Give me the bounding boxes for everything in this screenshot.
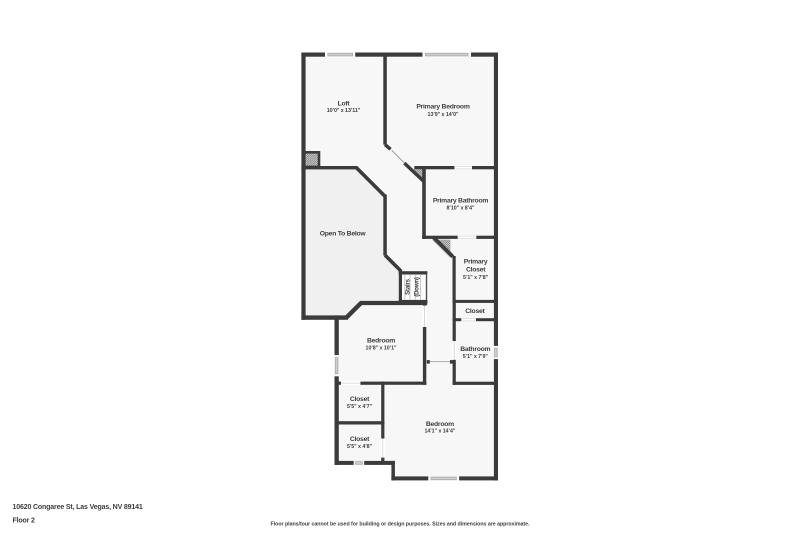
- svg-text:Primary Bedroom: Primary Bedroom: [416, 104, 469, 111]
- svg-text:5’5" x 4’8": 5’5" x 4’8": [347, 444, 373, 450]
- svg-text:Bedroom: Bedroom: [367, 337, 395, 344]
- svg-text:(Down): (Down): [413, 277, 420, 297]
- svg-text:Primary: Primary: [464, 258, 488, 265]
- svg-text:5’1" x 7’9": 5’1" x 7’9": [463, 354, 489, 360]
- svg-text:Bedroom: Bedroom: [426, 421, 454, 428]
- svg-text:10’0" x 13’11": 10’0" x 13’11": [327, 108, 361, 114]
- svg-text:Closet: Closet: [466, 267, 486, 274]
- svg-text:10620 Congaree St, Las Vegas,: 10620 Congaree St, Las Vegas, NV 89141: [13, 504, 143, 511]
- svg-text:Closet: Closet: [465, 308, 485, 315]
- svg-text:8’10" x 8’4": 8’10" x 8’4": [447, 206, 476, 212]
- svg-text:Open To Below: Open To Below: [320, 231, 367, 238]
- svg-text:13’9" x 14’0": 13’9" x 14’0": [428, 112, 459, 118]
- svg-text:5’1" x 7’8": 5’1" x 7’8": [463, 275, 489, 281]
- svg-text:Floor 2: Floor 2: [13, 518, 36, 525]
- svg-text:10’8" x 10’1": 10’8" x 10’1": [366, 345, 397, 351]
- svg-text:Primary Bathroom: Primary Bathroom: [433, 198, 489, 205]
- svg-text:Bathroom: Bathroom: [460, 346, 490, 353]
- svg-text:5’5" x 4’7": 5’5" x 4’7": [347, 404, 373, 410]
- svg-text:Closet: Closet: [350, 396, 370, 403]
- svg-text:Floor plans/tour cannot be use: Floor plans/tour cannot be used for buil…: [271, 522, 530, 528]
- svg-text:Stairs: Stairs: [405, 278, 412, 295]
- svg-text:Closet: Closet: [350, 436, 370, 443]
- svg-text:Loft: Loft: [338, 101, 351, 108]
- svg-text:14’1" x 14’4": 14’1" x 14’4": [424, 429, 455, 435]
